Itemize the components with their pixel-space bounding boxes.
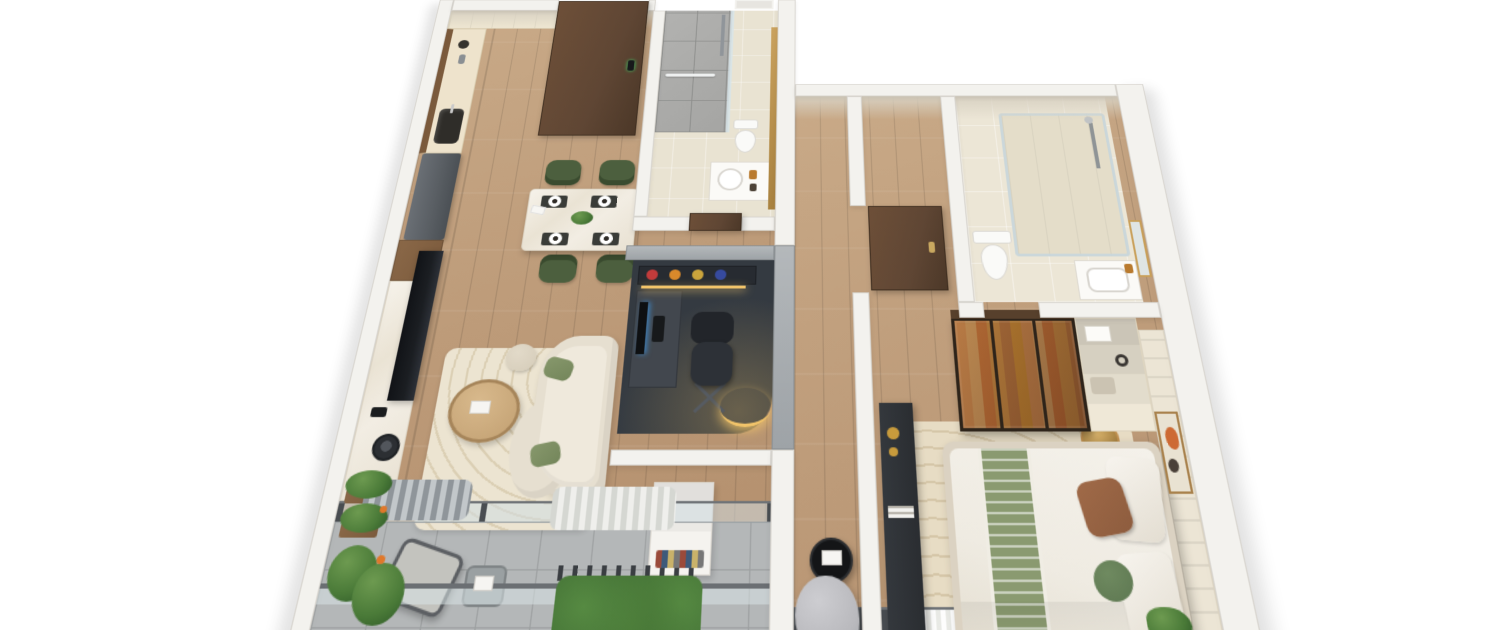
- cabinet-books: [655, 550, 704, 568]
- wall-ensuite-bottom-b: [1038, 302, 1161, 318]
- wall-leftblock-right-upper: [774, 0, 795, 245]
- gaming-chair-back: [690, 312, 734, 344]
- wall-leftblock-right-lower: [768, 450, 794, 630]
- wall-face-hall: [795, 96, 1122, 119]
- side-table-book: [822, 550, 843, 565]
- dining-chair-1: [544, 160, 583, 185]
- bedroom-door-handle: [928, 242, 935, 253]
- wardrobe-amber-glass: [951, 318, 1091, 432]
- apartment-plan: [255, 0, 1346, 630]
- gaming-chair-seat: [690, 342, 733, 386]
- bath1-jar-dark: [750, 184, 757, 192]
- bath1-toilet-tank: [733, 120, 758, 130]
- bath1-window-niche: [735, 0, 774, 9]
- shelf-white-box: [1084, 326, 1112, 342]
- wall-ensuite-bottom-a: [958, 302, 985, 318]
- wall-top-entry-jamb: [648, 0, 656, 11]
- wall-bath1-bottom-a: [632, 217, 692, 231]
- shelf-basket: [1090, 377, 1117, 394]
- ensuite-bottles: [1124, 264, 1134, 273]
- curtain-light: [549, 487, 677, 531]
- outdoor-table-book: [473, 576, 495, 592]
- media-books: [888, 506, 914, 518]
- coffee-table-book: [469, 401, 491, 414]
- bathroom-door: [689, 213, 742, 231]
- keyboard: [651, 316, 665, 342]
- media-gold-decor-1: [887, 427, 900, 439]
- hedge-planter: [548, 576, 703, 630]
- speaker: [370, 407, 388, 417]
- wall-bath1-bottom-b: [741, 217, 775, 231]
- wall-top-kitchen: [451, 0, 559, 11]
- dining-chair-2: [598, 160, 636, 185]
- dining-chair-3: [537, 255, 578, 283]
- media-gold-decor-2: [889, 447, 899, 456]
- wall-nook-right-gray: [772, 245, 795, 449]
- wall-niche-top: [609, 450, 771, 466]
- wall-nook-top-gray: [625, 245, 774, 260]
- floorplan-render: [0, 0, 1500, 630]
- led-shelf-light: [641, 286, 746, 289]
- ensuite-toilet-tank: [972, 231, 1012, 244]
- wall-rightblock-top: [795, 84, 1117, 96]
- bath1-cup-amber: [749, 170, 757, 179]
- bedroom-door: [868, 206, 949, 290]
- towel-bar: [665, 74, 715, 77]
- entry-door-lock: [627, 60, 635, 70]
